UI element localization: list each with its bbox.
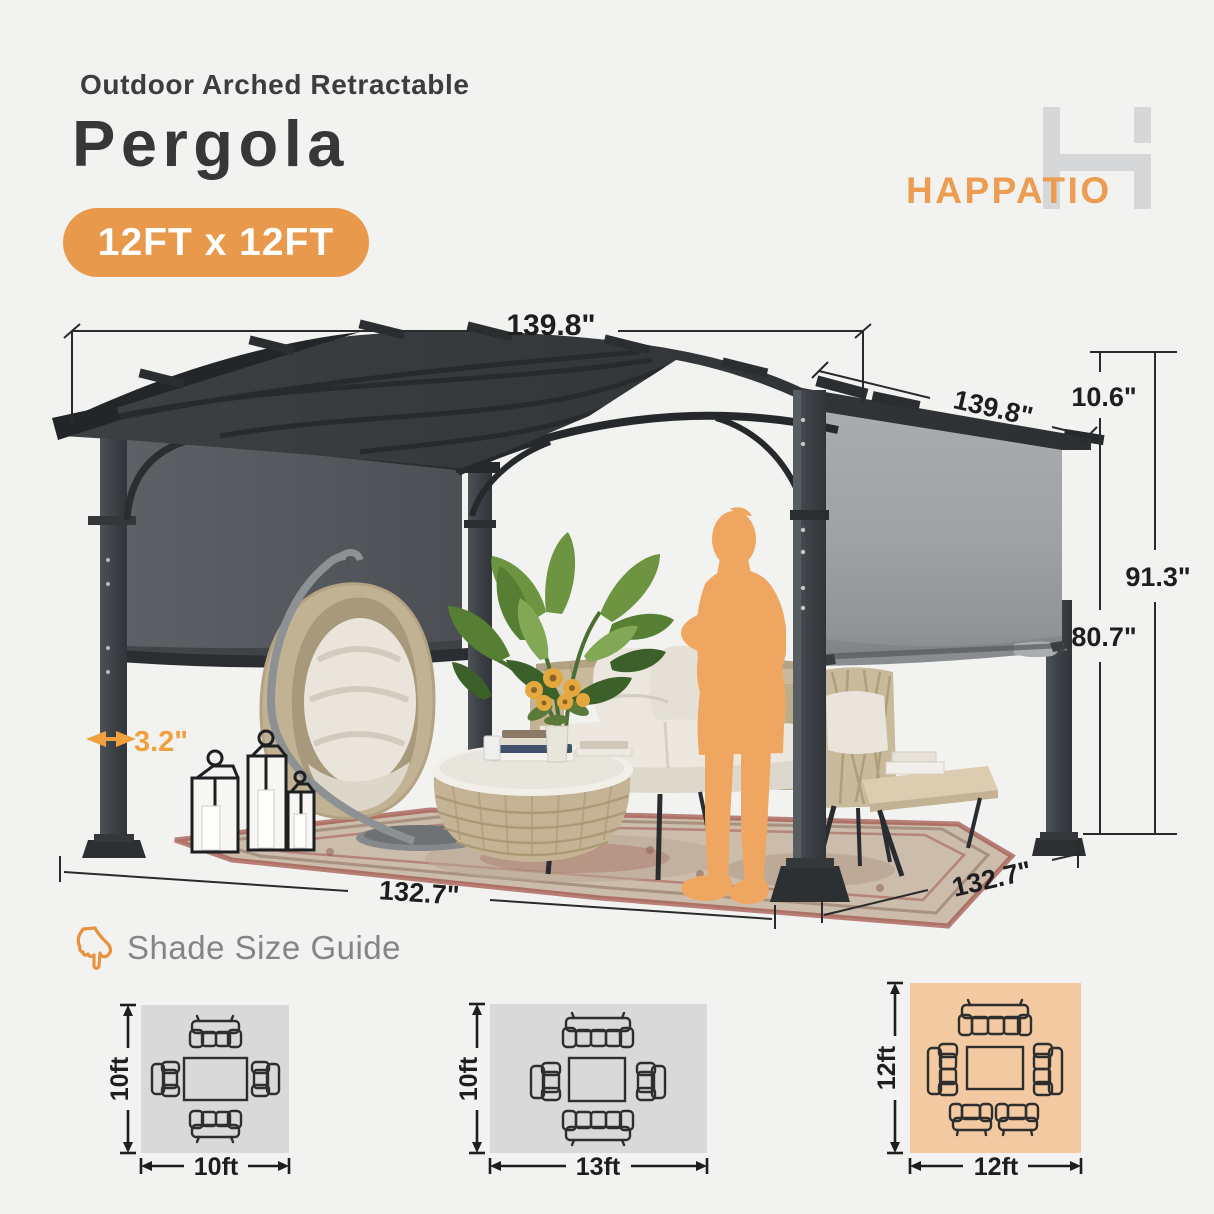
svg-text:132.7": 132.7" xyxy=(378,875,460,911)
svg-text:80.7": 80.7" xyxy=(1071,622,1136,652)
svg-text:10ft: 10ft xyxy=(455,1056,483,1101)
svg-text:91.3": 91.3" xyxy=(1125,562,1190,592)
svg-text:12ft: 12ft xyxy=(974,1153,1019,1181)
svg-text:10.6": 10.6" xyxy=(1071,382,1136,412)
svg-text:139.8": 139.8" xyxy=(506,309,595,342)
svg-text:3.2": 3.2" xyxy=(134,726,188,758)
svg-text:13ft: 13ft xyxy=(576,1153,621,1181)
svg-text:12ft: 12ft xyxy=(873,1045,901,1090)
svg-text:10ft: 10ft xyxy=(194,1153,239,1181)
svg-text:10ft: 10ft xyxy=(106,1056,134,1101)
